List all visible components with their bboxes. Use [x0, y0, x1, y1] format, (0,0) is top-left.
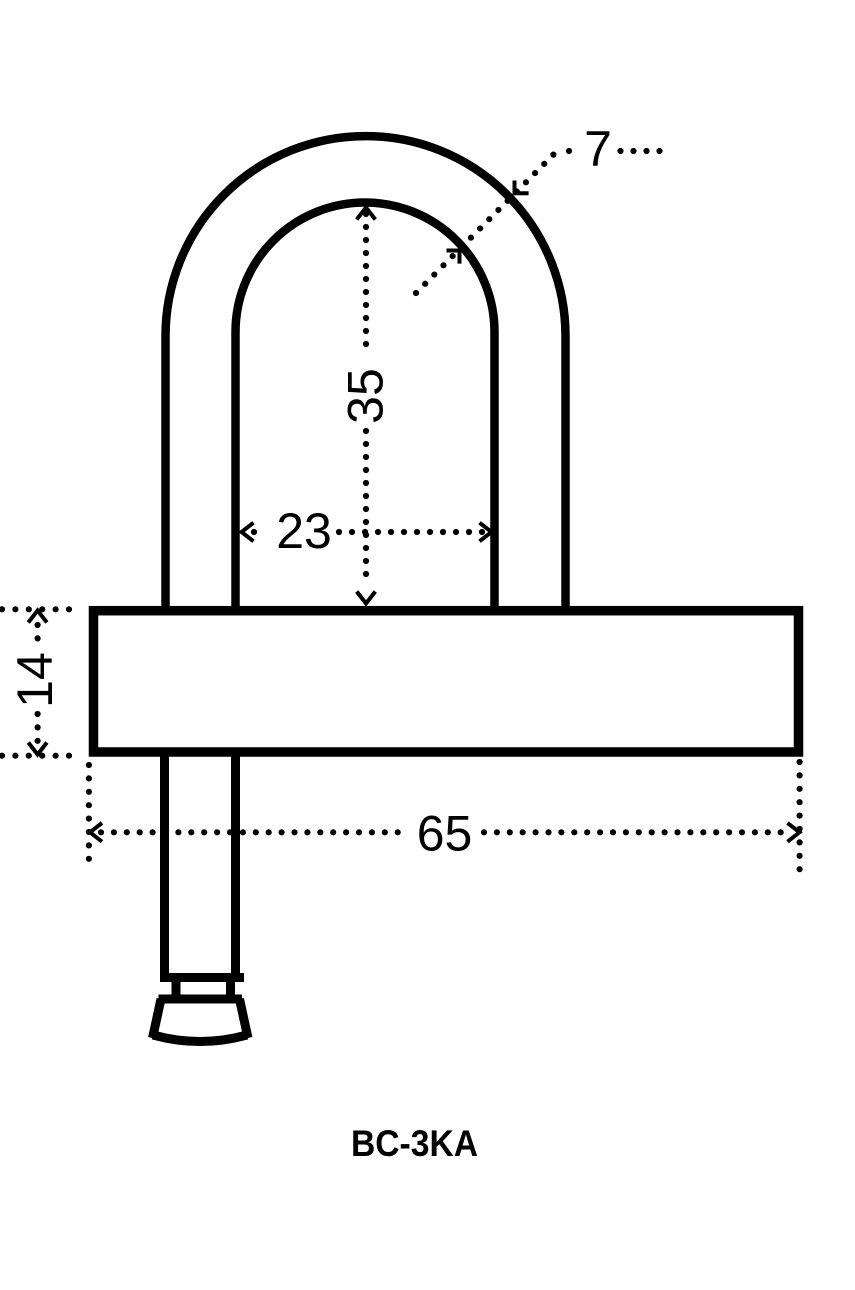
svg-text:7: 7 — [584, 121, 612, 177]
svg-text:14: 14 — [7, 652, 63, 708]
svg-text:BC-3KA: BC-3KA — [351, 1123, 478, 1164]
svg-text:65: 65 — [417, 806, 473, 862]
svg-text:35: 35 — [338, 368, 394, 424]
svg-text:23: 23 — [276, 503, 332, 559]
